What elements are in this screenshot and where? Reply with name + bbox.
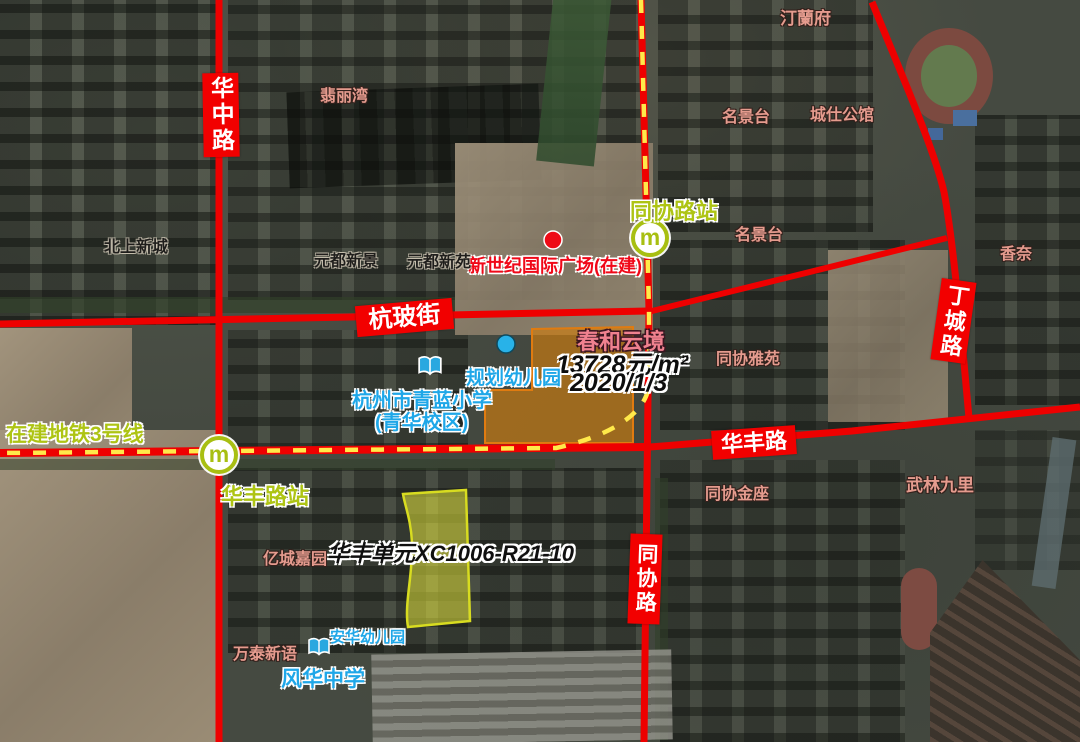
metro-station-label-tongxielu: 同协路站	[630, 194, 718, 226]
community-label: 香奈	[1000, 240, 1032, 264]
community-label: 城仕公馆	[810, 101, 874, 125]
community-label: 万泰新语	[233, 640, 297, 664]
parcel-label-xc1006: 华丰单元XC1006-R21-10	[327, 536, 574, 568]
community-label: 同协金座	[705, 480, 769, 504]
road-badge-huazhong: 华中路	[202, 73, 239, 158]
poi-school-label-line2: (青华校区)	[375, 406, 468, 435]
community-label: 名景台	[722, 103, 770, 127]
metro-station-label-huafenglu: 华丰路站	[221, 479, 309, 511]
community-label: 武林九里	[906, 471, 974, 496]
road-badge-huafeng: 华丰路	[711, 425, 797, 460]
community-label: 翡丽湾	[320, 82, 368, 106]
community-label: 元都新苑	[407, 248, 471, 272]
community-label: 同协雅苑	[716, 345, 780, 369]
road-badge-tongxie: 同协路	[627, 533, 662, 624]
hangbo-east-extension-road	[648, 238, 947, 312]
satellite-map: 华中路 杭玻街 华丰路 丁城路 同协路 m m 同协路站 华丰路站 在建地铁3号…	[0, 0, 1080, 742]
community-label: 北上新城	[104, 233, 168, 257]
poi-plaza-label: 新世纪国际广场(在建)	[468, 252, 642, 278]
kindergarten-blue-dot	[497, 335, 515, 353]
poi-fenghua-middle-school-label: 风华中学	[281, 663, 365, 693]
listing-date: 2020/1/3	[570, 369, 667, 398]
plaza-red-dot	[544, 231, 562, 249]
metro-line3-label: 在建地铁3号线	[6, 418, 144, 448]
school-book-icon	[417, 355, 443, 377]
kindergarten-book-icon	[307, 637, 331, 657]
metro-station-icon-huafenglu: m	[200, 436, 238, 474]
poi-anhua-kindergarten-label: 安华幼儿园	[330, 626, 405, 647]
community-label: 名景台	[735, 221, 783, 245]
community-label: 元都新景	[314, 247, 378, 271]
community-label: 亿城嘉园	[263, 545, 327, 569]
hangbo-street-road	[0, 311, 648, 324]
community-label: 汀蘭府	[780, 4, 831, 29]
